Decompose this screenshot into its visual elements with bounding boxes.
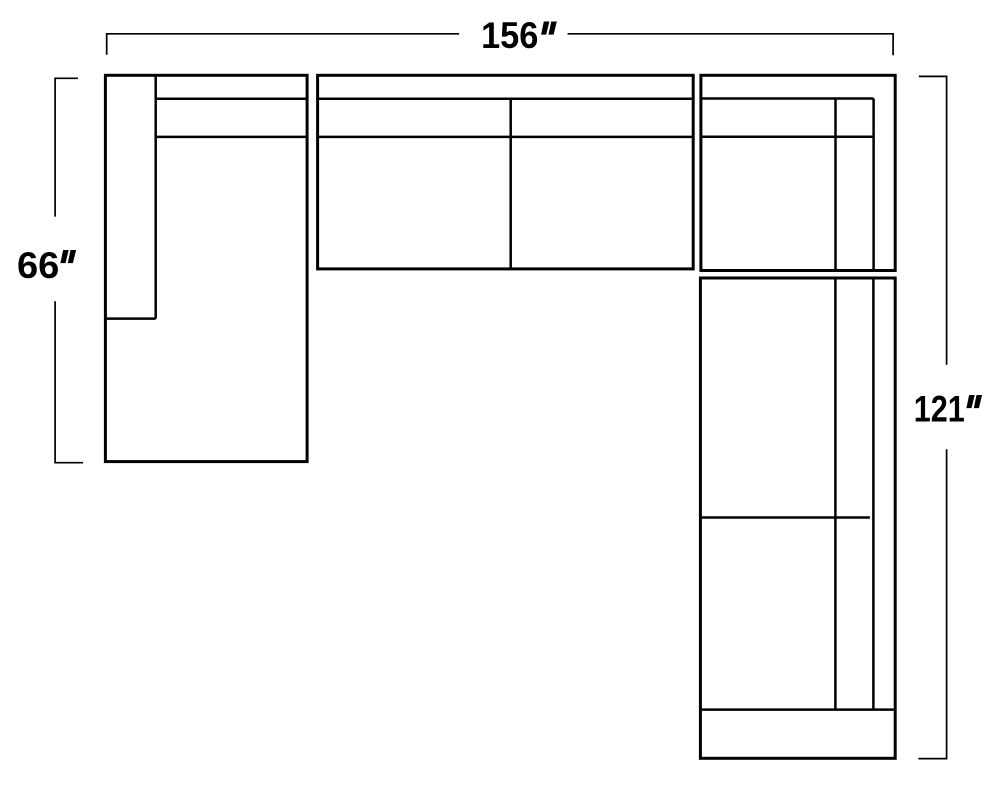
svg-text:121: 121 <box>914 389 965 430</box>
svg-text:66: 66 <box>17 245 59 286</box>
svg-text:156: 156 <box>481 15 538 56</box>
